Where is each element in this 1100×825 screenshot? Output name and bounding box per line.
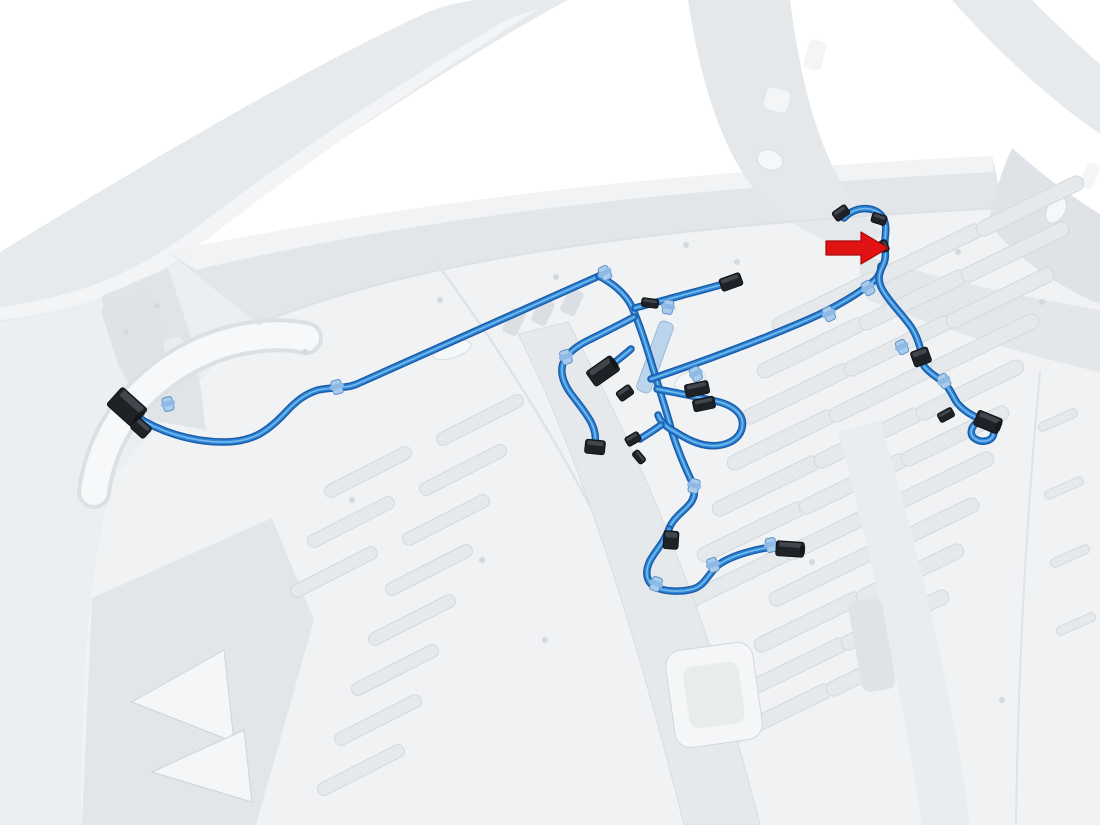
vehicle-body-wiring-illustration xyxy=(0,0,1100,825)
bolt-hole xyxy=(1039,299,1045,305)
bolt-hole xyxy=(809,559,815,565)
bolt-hole xyxy=(349,497,355,503)
connector-latch xyxy=(800,545,806,554)
electrical-connector xyxy=(663,530,679,549)
bolt-hole xyxy=(479,557,485,563)
bolt-hole xyxy=(955,249,961,255)
bolt-hole xyxy=(542,637,548,643)
bolt-hole xyxy=(437,297,443,303)
connector-top-face xyxy=(665,532,677,538)
electrical-connector xyxy=(641,297,659,308)
body-shape-right-roof-rail xyxy=(952,0,1100,134)
electrical-connector xyxy=(584,439,605,455)
bolt-hole xyxy=(683,242,689,248)
body-detail-pillar-hole-1 xyxy=(802,38,827,72)
electrical-connector xyxy=(776,541,806,558)
bolt-hole xyxy=(734,259,740,265)
body-detail-sill-access-hole-inner xyxy=(682,660,746,729)
bolt-hole xyxy=(302,349,308,355)
bolt-hole xyxy=(123,329,129,335)
bolt-hole xyxy=(553,274,559,280)
bolt-hole xyxy=(154,303,160,309)
connector-housing xyxy=(641,297,659,308)
illustration-stage xyxy=(0,0,1100,825)
bolt-hole xyxy=(999,697,1005,703)
